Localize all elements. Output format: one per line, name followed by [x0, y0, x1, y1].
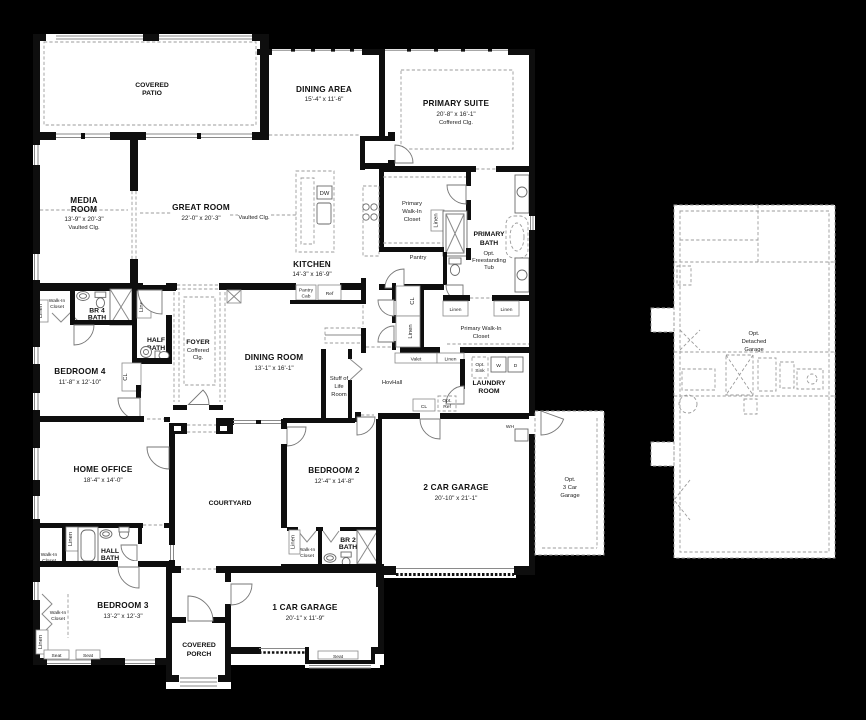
svg-text:BEDROOM 2: BEDROOM 2 [308, 466, 360, 475]
svg-text:Freestanding: Freestanding [472, 258, 506, 264]
svg-text:PORCH: PORCH [187, 651, 212, 658]
svg-text:Garage: Garage [560, 493, 579, 499]
svg-text:Linen: Linen [501, 307, 513, 313]
svg-text:Closet: Closet [51, 616, 66, 622]
svg-text:HOME OFFICE: HOME OFFICE [73, 465, 132, 474]
svg-text:3 Car: 3 Car [563, 485, 577, 491]
svg-text:W: W [496, 363, 501, 369]
svg-text:Linen: Linen [408, 324, 414, 338]
svg-text:PRIMARY: PRIMARY [473, 231, 505, 238]
svg-text:Closet: Closet [300, 553, 315, 559]
svg-text:13'-9" x 20'-3": 13'-9" x 20'-3" [64, 216, 103, 223]
svg-text:14'-3" x 16'-9": 14'-3" x 16'-9" [292, 271, 331, 278]
svg-text:2 CAR GARAGE: 2 CAR GARAGE [423, 483, 489, 492]
svg-text:Room: Room [331, 392, 347, 398]
svg-text:13'-1" x 16'-1": 13'-1" x 16'-1" [254, 365, 293, 372]
svg-text:ROOM: ROOM [71, 205, 97, 214]
svg-text:DINING AREA: DINING AREA [296, 85, 352, 94]
svg-text:Coffered Clg.: Coffered Clg. [439, 120, 473, 126]
svg-text:HALL: HALL [101, 548, 119, 555]
svg-text:Pantry: Pantry [299, 288, 314, 294]
svg-text:BEDROOM 3: BEDROOM 3 [97, 601, 149, 610]
svg-text:Opt.: Opt. [565, 477, 576, 483]
svg-text:D: D [514, 363, 518, 369]
svg-text:Clg.: Clg. [193, 355, 204, 361]
svg-text:12'-4" x 14'-8": 12'-4" x 14'-8" [314, 478, 353, 485]
svg-text:COVERED: COVERED [135, 82, 169, 89]
svg-text:Opt.: Opt. [749, 331, 760, 337]
svg-text:11'-8" x 12'-10": 11'-8" x 12'-10" [59, 379, 101, 386]
svg-text:Sink: Sink [475, 368, 485, 374]
svg-text:Walk-In: Walk-In [50, 610, 67, 616]
svg-text:KITCHEN: KITCHEN [293, 260, 331, 269]
svg-text:Seat: Seat [333, 654, 344, 660]
svg-text:CL: CL [410, 297, 416, 305]
svg-text:Walk-In: Walk-In [49, 298, 66, 304]
svg-text:Vaulted Clg.: Vaulted Clg. [68, 225, 100, 231]
svg-text:MEDIA: MEDIA [70, 196, 97, 205]
svg-text:Opt.: Opt. [484, 251, 495, 257]
svg-text:BEDROOM 4: BEDROOM 4 [54, 367, 106, 376]
svg-text:Opt.: Opt. [475, 362, 484, 368]
svg-text:18'-4" x 14'-0": 18'-4" x 14'-0" [83, 477, 122, 484]
svg-text:Seat: Seat [83, 653, 94, 659]
svg-text:Linen: Linen [38, 635, 44, 649]
svg-text:Linen: Linen [68, 532, 74, 546]
svg-text:20'-10" x 21'-1": 20'-10" x 21'-1" [435, 495, 478, 502]
svg-text:DW: DW [320, 191, 330, 197]
svg-text:BR 2: BR 2 [340, 537, 356, 544]
svg-text:Life: Life [334, 384, 343, 390]
svg-text:PATIO: PATIO [142, 90, 162, 97]
svg-text:22'-0" x 20'-3": 22'-0" x 20'-3" [181, 215, 220, 222]
svg-text:ROOM: ROOM [478, 388, 499, 395]
svg-text:13'-2" x 12'-3": 13'-2" x 12'-3" [103, 613, 142, 620]
svg-text:20'-1" x 11'-9": 20'-1" x 11'-9" [286, 615, 325, 622]
svg-text:Ref: Ref [443, 404, 451, 410]
svg-text:BATH: BATH [480, 240, 498, 247]
svg-text:FOYER: FOYER [186, 339, 210, 346]
svg-text:Linen: Linen [291, 535, 297, 549]
svg-text:LAUNDRY: LAUNDRY [473, 380, 506, 387]
svg-text:Ref: Ref [326, 291, 334, 297]
svg-text:Detached: Detached [742, 339, 767, 345]
svg-text:CL: CL [123, 373, 129, 381]
svg-text:WH: WH [506, 424, 515, 430]
svg-text:Linen: Linen [445, 357, 457, 363]
svg-text:Primary: Primary [402, 201, 422, 207]
svg-text:Walk-In: Walk-In [41, 552, 58, 558]
svg-text:PRIMARY SUITE: PRIMARY SUITE [423, 99, 490, 108]
svg-text:Pantry: Pantry [410, 255, 427, 261]
svg-text:GREAT ROOM: GREAT ROOM [172, 203, 230, 212]
svg-text:Closet: Closet [473, 334, 490, 340]
svg-text:BATH: BATH [101, 555, 119, 562]
svg-text:Coffered: Coffered [187, 348, 209, 354]
svg-text:Tub: Tub [484, 265, 494, 271]
svg-text:CL: CL [421, 404, 428, 410]
svg-text:1 CAR GARAGE: 1 CAR GARAGE [272, 603, 338, 612]
svg-text:Walk-In: Walk-In [402, 209, 421, 215]
svg-text:Stuff of: Stuff of [330, 376, 349, 382]
svg-text:COVERED: COVERED [182, 642, 216, 649]
svg-text:COURTYARD: COURTYARD [209, 500, 252, 507]
svg-text:DINING ROOM: DINING ROOM [245, 353, 304, 362]
svg-text:BR 4: BR 4 [89, 308, 105, 315]
svg-text:HovHall: HovHall [382, 380, 402, 386]
svg-text:BATH: BATH [339, 544, 357, 551]
svg-text:Primary Walk-In: Primary Walk-In [460, 326, 501, 332]
svg-text:Closet: Closet [404, 217, 421, 223]
svg-text:Valet: Valet [411, 357, 422, 363]
svg-text:Vaulted Clg.: Vaulted Clg. [238, 215, 270, 221]
svg-text:Walk-In: Walk-In [299, 547, 316, 553]
svg-text:Opt.: Opt. [442, 398, 451, 404]
svg-text:15'-4" x 11'-6": 15'-4" x 11'-6" [305, 96, 344, 103]
svg-text:HALF: HALF [147, 337, 165, 344]
svg-text:Closet: Closet [50, 304, 65, 310]
svg-text:Seat: Seat [51, 653, 62, 659]
svg-text:Linen: Linen [450, 307, 462, 313]
svg-text:Linen: Linen [434, 213, 440, 227]
svg-text:20'-8" x 16'-1": 20'-8" x 16'-1" [436, 111, 475, 118]
svg-text:Cab: Cab [302, 294, 311, 300]
